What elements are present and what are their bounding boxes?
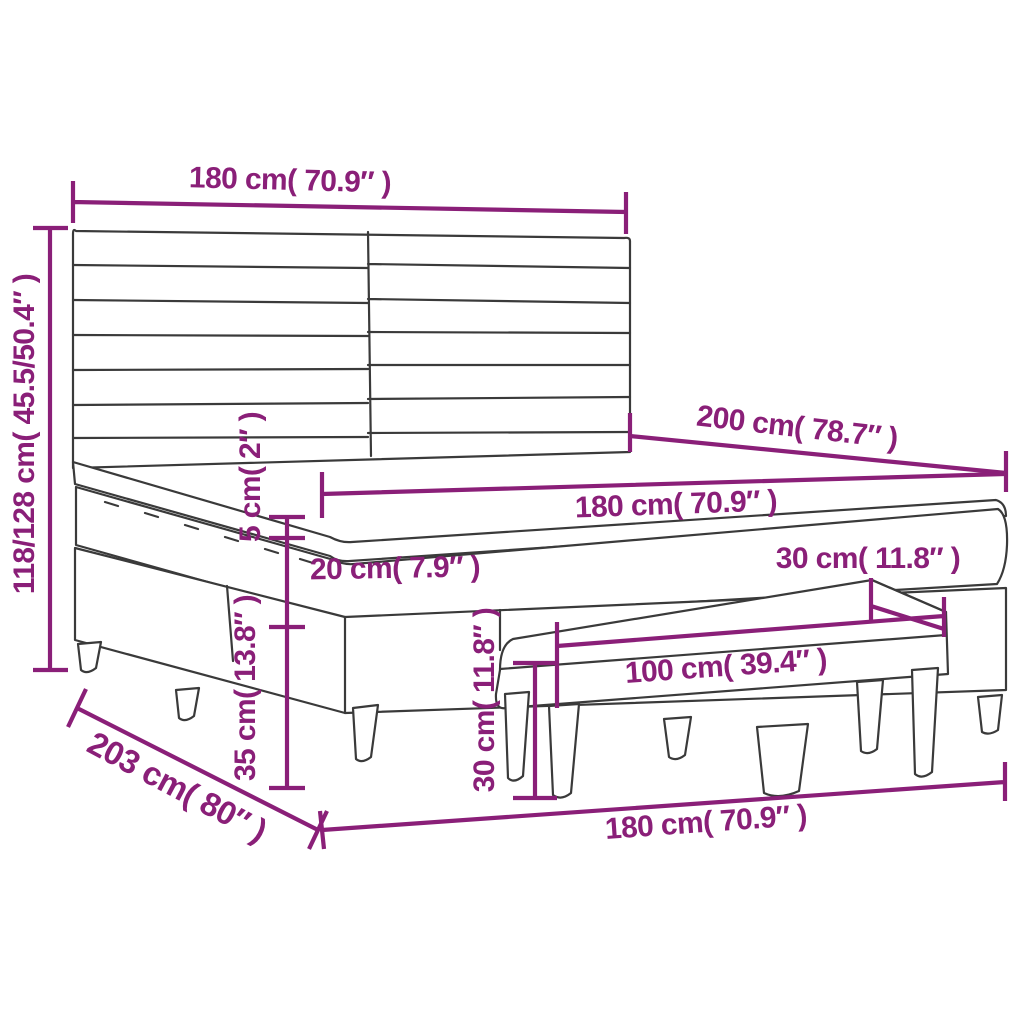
dim-overall-height-label: 118/128 cm( 45.5/50.4″ ) (8, 274, 41, 594)
dim-mattress-width-label: 180 cm( 70.9″ ) (574, 484, 777, 524)
dim-mattress-thickness-label: 20 cm( 7.9″ ) (310, 550, 481, 586)
dimension-diagram: 180 cm( 70.9″ ) 118/128 cm( 45.5/50.4″ )… (0, 0, 1024, 1024)
bed-illustration (73, 230, 1007, 798)
dim-bench-depth-label: 30 cm( 11.8″ ) (776, 542, 960, 575)
dim-base-height-label: 35 cm( 13.8″ ) (229, 595, 262, 781)
dim-bench-height-label: 30 cm( 11.8″ ) (468, 608, 501, 792)
dim-top-width-label: 180 cm( 70.9″ ) (189, 161, 392, 199)
dim-topper-thickness-label: 5 cm( 2″ ) (234, 412, 267, 542)
bed-dimension-drawing: 180 cm( 70.9″ ) 118/128 cm( 45.5/50.4″ )… (0, 0, 1024, 1024)
